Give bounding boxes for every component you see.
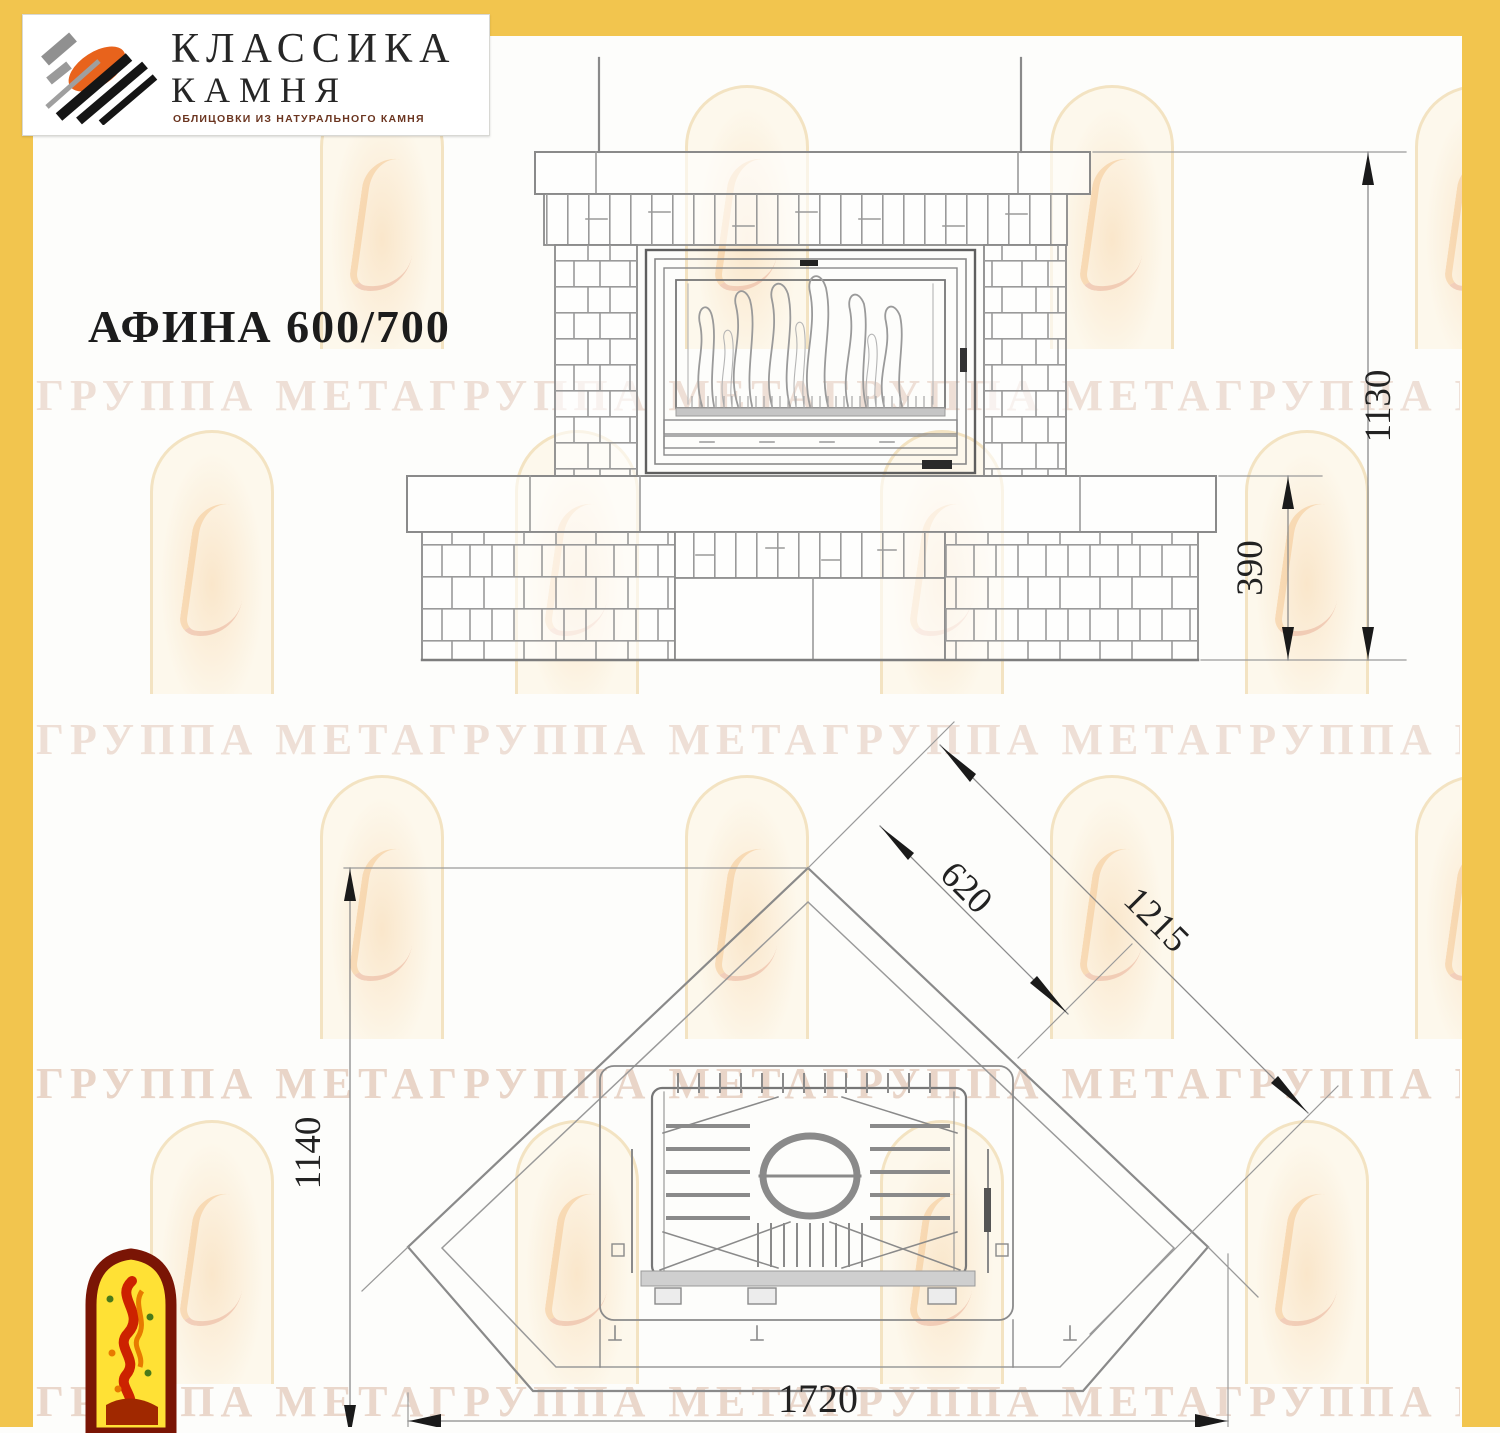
page-title: АФИНА 600/700 xyxy=(88,300,451,353)
chimney-lines xyxy=(599,58,1021,152)
plan-view: 1140 1720 620 1215 xyxy=(288,722,1338,1427)
door-nameplate xyxy=(922,460,952,469)
brand-tagline: ОБЛИЦОВКИ ИЗ НАТУРАЛЬНОГО КАМНЯ xyxy=(173,113,425,125)
firebox-door xyxy=(646,250,975,473)
plan-dimensions: 1140 1720 620 1215 xyxy=(288,722,1338,1427)
dim-1720-label: 1720 xyxy=(778,1376,858,1421)
dim-390-label: 390 xyxy=(1230,540,1271,596)
dim-620-label: 620 xyxy=(932,854,1000,922)
flames xyxy=(698,276,902,406)
brand-logo: КЛАССИКА КАМНЯ ОБЛИЦОВКИ ИЗ НАТУРАЛЬНОГО… xyxy=(22,14,490,136)
brand-mark-icon xyxy=(35,25,165,125)
front-elevation-view: 1130 390 xyxy=(407,58,1406,660)
frame-right-bar xyxy=(1462,0,1500,1427)
dim-1140-label: 1140 xyxy=(288,1117,329,1190)
base-masonry xyxy=(422,532,1198,660)
corner-ornament-logo xyxy=(84,1243,178,1433)
stone-column-right xyxy=(984,245,1066,476)
dim-1130-label: 1130 xyxy=(1358,370,1399,443)
frame-left-bar xyxy=(0,0,33,1427)
fireplace-technical-drawing: 1130 390 xyxy=(0,0,1500,1427)
door-handle xyxy=(960,348,967,372)
brand-name-line2: КАМНЯ xyxy=(171,69,348,111)
brand-name-line1: КЛАССИКА xyxy=(171,25,456,73)
stone-column-left xyxy=(555,245,637,476)
firebox-insert-top-view xyxy=(600,1066,1076,1367)
